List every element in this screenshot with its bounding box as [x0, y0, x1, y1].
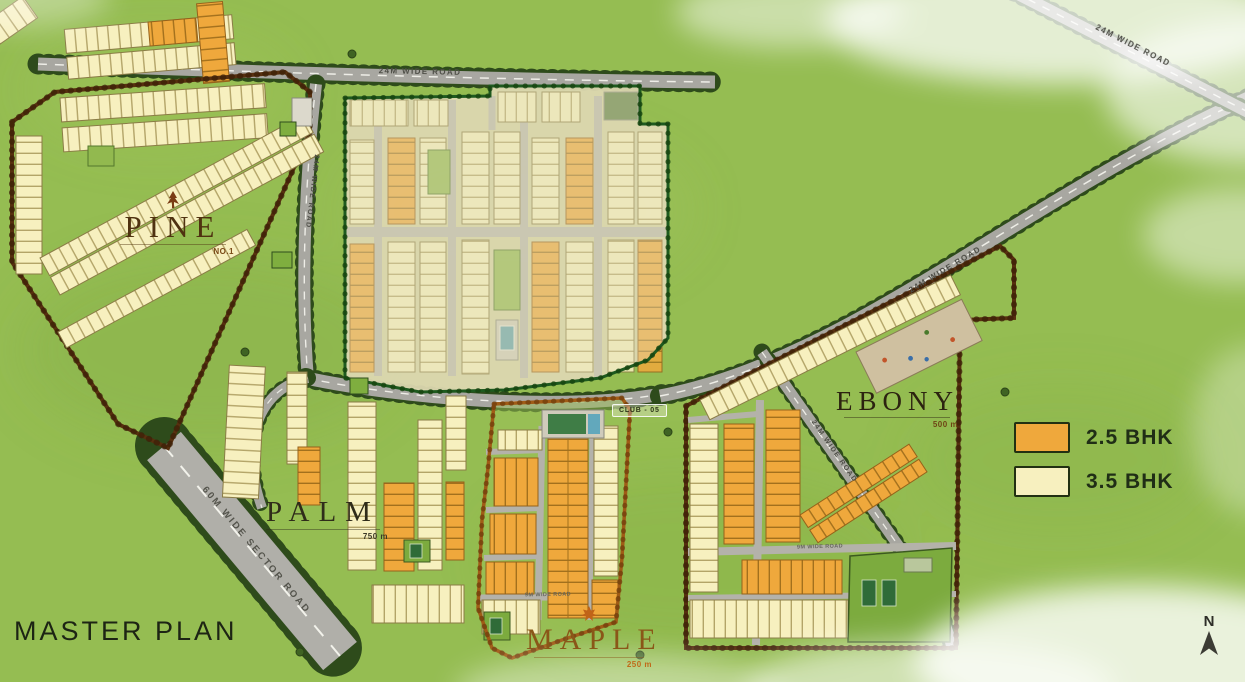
- north-arrow-icon: [1197, 629, 1221, 657]
- divider: [844, 417, 950, 418]
- club-label: CLUB - 05: [612, 404, 667, 417]
- section-name: PALM: [258, 498, 388, 527]
- sports-court: [404, 540, 430, 562]
- tennis-court: [862, 580, 876, 606]
- park: [272, 252, 292, 268]
- section-label-ebony: EBONY 500 m: [836, 388, 958, 429]
- road-label-9m-maple: 9M WIDE ROAD: [518, 591, 578, 598]
- future-phase-area: [345, 86, 668, 392]
- section-label-pine: PINE NO.1: [112, 190, 234, 256]
- section-name: EBONY: [836, 388, 958, 415]
- site-plan-artwork: [0, 0, 1245, 682]
- divider: [534, 657, 644, 658]
- legend: 2.5 BHK 3.5 BHK: [1014, 422, 1174, 510]
- section-sub: 250 m: [526, 660, 652, 669]
- park: [280, 122, 296, 136]
- north-label: N: [1194, 614, 1224, 629]
- park: [350, 378, 368, 394]
- section-label-maple: MAPLE 250 m: [526, 604, 652, 669]
- building: [904, 558, 932, 572]
- section-sub: 500 m: [836, 420, 958, 429]
- legend-swatch-3-5bhk: [1014, 466, 1070, 497]
- legend-item-2-5bhk: 2.5 BHK: [1014, 422, 1174, 453]
- section-sub: NO.1: [112, 247, 234, 256]
- section-name: MAPLE: [526, 625, 652, 655]
- divider: [266, 529, 380, 530]
- section-name: PINE: [112, 211, 234, 242]
- pine-tree-icon: [163, 190, 183, 210]
- master-plan-map: 24M WIDE ROAD 24M WIDE ROAD 24M WIDE ROA…: [0, 0, 1245, 682]
- legend-swatch-2-5bhk: [1014, 422, 1070, 453]
- legend-label: 2.5 BHK: [1086, 426, 1174, 450]
- maple-leaf-icon: [578, 604, 600, 624]
- legend-label: 3.5 BHK: [1086, 470, 1174, 494]
- park: [88, 146, 114, 166]
- section-sub: 750 m: [258, 532, 388, 541]
- section-label-palm: PALM 750 m: [258, 498, 388, 541]
- tennis-court: [882, 580, 896, 606]
- club-pool: [542, 410, 604, 438]
- legend-item-3-5bhk: 3.5 BHK: [1014, 466, 1174, 497]
- divider: [120, 244, 226, 245]
- page-title: MASTER PLAN: [14, 616, 238, 647]
- ebony-courts: [848, 548, 952, 642]
- north-indicator: N: [1194, 614, 1224, 662]
